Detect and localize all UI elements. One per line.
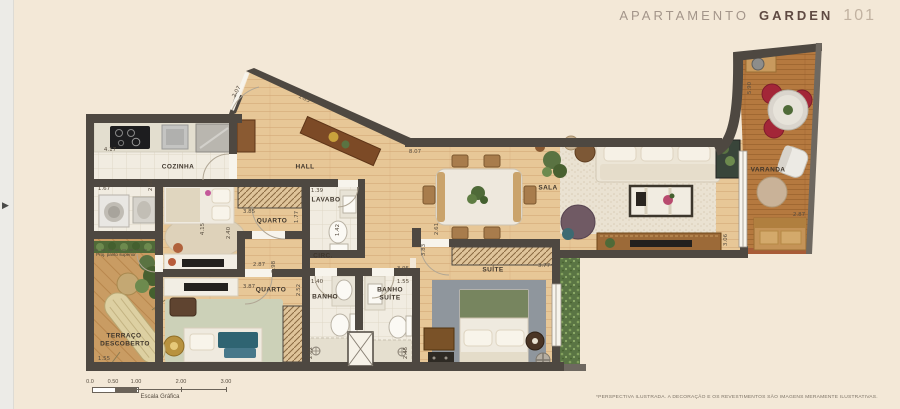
scale-tick: 0.0 [86, 379, 94, 385]
room-label-quarto1: QUARTO [257, 218, 287, 225]
room-label-terraco-2: DESCOBERTO [100, 341, 150, 348]
scale-bar-caption: Escala Gráfica [140, 394, 179, 400]
dimension-label: 1.77 [294, 211, 300, 223]
dimension-label: 2.40 [226, 227, 232, 239]
dimension-label: 3.95 [397, 266, 409, 272]
scale-bar-box [92, 387, 139, 393]
dimension-label: 2.62 [308, 347, 314, 359]
room-label-banho-suite-1: BANHO [377, 287, 403, 294]
room-label-sala: SALA [538, 185, 557, 192]
suite-window [552, 284, 561, 346]
upper-floor-projection-note: Proj. pavto superior [96, 252, 136, 257]
ottoman [170, 298, 196, 316]
floor-plan-svg [0, 0, 900, 409]
dimension-label: 3.85 [243, 209, 255, 215]
dimension-label: 3.83 [421, 244, 427, 256]
room-label-terraco-1: TERRAÇO [107, 333, 142, 340]
scale-bar-tick [226, 387, 227, 392]
dimension-label: 2.61 [434, 223, 440, 235]
floor-plan-page: ▶ APARTAMENTO GARDEN 101 [0, 0, 900, 409]
wardrobe2 [283, 306, 305, 362]
dimension-label: 0.98 [271, 261, 277, 273]
room-label-suite: SUÍTE [482, 267, 503, 274]
tv [630, 240, 692, 247]
varanda-pouf [757, 177, 787, 207]
dimension-label: 1.39 [311, 188, 323, 194]
dimension-label: 3.87 [243, 284, 255, 290]
dimension-label: 1.55 [98, 356, 110, 362]
room-label-varanda: VARANDA [751, 167, 786, 174]
dimension-label: 2.87 [253, 262, 265, 268]
hedge [560, 258, 580, 366]
room-label-lavabo: LAVABO [312, 197, 341, 204]
room-label-hall: HALL [296, 164, 315, 171]
dimension-label: 1.55 [397, 279, 409, 285]
dimension-label: 1.40 [311, 279, 323, 285]
suite-bench [424, 328, 454, 350]
scale-tick: 0.50 [108, 379, 119, 385]
dimension-label: 5.90 [747, 82, 753, 94]
room-label-banho-suite-2: SUÍTE [379, 295, 400, 302]
room-label-quarto2: QUARTO [256, 287, 286, 294]
room-label-cozinha: COZINHA [162, 164, 194, 171]
dimension-label: 4.17 [104, 147, 116, 153]
dimension-label: 4.15 [200, 223, 206, 235]
dimension-label: 1.42 [335, 224, 341, 236]
disclaimer-text: *PERSPECTIVA ILUSTRADA. A DECORAÇÃO E OS… [596, 395, 892, 400]
dimension-label: 3.77 [538, 263, 550, 269]
dimension-label: 2.87 [793, 212, 805, 218]
dimension-label: 2.52 [296, 284, 302, 296]
dimension-label: 2.45 [403, 347, 409, 359]
scale-tick: 2.00 [176, 379, 187, 385]
room-label-banho: BANHO [312, 294, 338, 301]
scale-bar-tick [181, 387, 182, 392]
dimension-label: 8.07 [409, 149, 421, 155]
dimension-label: 2.68 [148, 179, 154, 191]
dimension-label: 1.67 [98, 186, 110, 192]
wardrobe1 [238, 186, 302, 208]
room-label-circ: CIRC. [313, 253, 333, 260]
dimension-label: 3.06 [723, 234, 729, 246]
hall-cabinet [237, 120, 255, 152]
scale-bar-line [137, 389, 227, 390]
scale-tick: 1.00 [131, 379, 142, 385]
scale-tick: 3.00 [221, 379, 232, 385]
